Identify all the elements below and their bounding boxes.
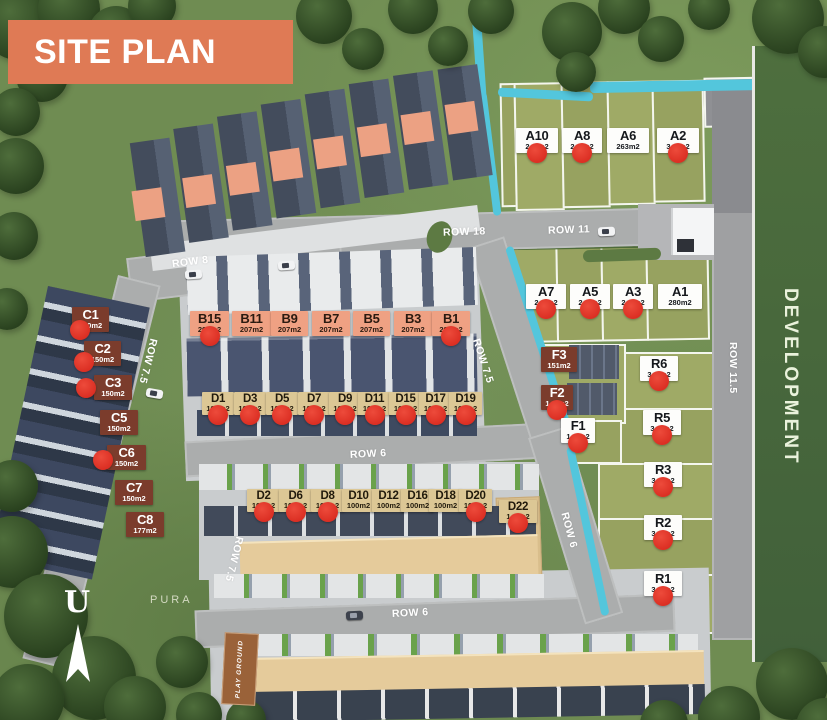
sold-marker [547, 400, 567, 420]
sold-marker [70, 320, 90, 340]
lot-f1: F11__m2 [561, 418, 595, 443]
lot-c6: C6150m2 [107, 445, 146, 470]
lot-d18: D18100m2 [429, 489, 462, 512]
lot-d2: D2100m2 [247, 489, 280, 512]
guard-house-window [677, 239, 694, 252]
lot-r5: R53__m2 [643, 410, 681, 435]
tree [388, 0, 438, 34]
lot-d6: D6100m2 [279, 489, 312, 512]
lot-a1: A1280m2 [658, 284, 702, 309]
sold-marker [304, 405, 324, 425]
tree [638, 16, 684, 62]
house-terrace [313, 135, 347, 169]
north-arrow-icon [64, 624, 92, 682]
car [346, 611, 363, 621]
lot-a6: A6263m2 [607, 128, 649, 153]
road-label-row18: ROW 18 [443, 225, 486, 238]
sold-marker [653, 586, 673, 606]
tree [0, 288, 28, 330]
sold-marker [653, 530, 673, 550]
house-terrace [445, 101, 479, 135]
north-indicator: U [64, 588, 92, 682]
lot-c5: C5150m2 [100, 410, 138, 435]
lot-c7: C7150m2 [115, 480, 153, 505]
lot-r1: R13__m2 [644, 571, 682, 596]
lot-a2: A23__m2 [657, 128, 699, 153]
sold-marker [668, 143, 688, 163]
house-terrace [182, 174, 216, 208]
road-row115-dark-top [712, 85, 755, 213]
lot-a8: A82__m2 [562, 128, 602, 153]
car [278, 260, 296, 270]
lot-b11: B11207m2 [232, 311, 271, 336]
sold-marker [536, 299, 556, 319]
lot-f3: F3151m2 [541, 347, 577, 372]
lot-d8: D8100m2 [311, 489, 344, 512]
lot-b5: B5207m2 [353, 311, 390, 336]
road-label-row6-bottom: ROW 6 [392, 606, 429, 620]
tree [0, 212, 38, 260]
page-title: SITE PLAN [34, 33, 216, 72]
lot-d17: D17100m2 [419, 392, 452, 415]
mid-house-fronts [199, 464, 539, 490]
sold-marker [652, 425, 672, 445]
tree [556, 52, 596, 92]
title-banner: SITE PLAN [8, 20, 293, 84]
car [185, 269, 203, 279]
sold-marker [74, 352, 94, 372]
house-terrace [401, 111, 435, 145]
lot-c8: C8177m2 [126, 512, 164, 537]
playground-label: PLAY GROUND [234, 640, 246, 699]
car [145, 388, 163, 400]
north-label: U [64, 588, 92, 618]
sold-marker [286, 502, 306, 522]
sold-marker [93, 450, 113, 470]
sold-marker [426, 405, 446, 425]
sold-marker [318, 502, 338, 522]
tree [688, 0, 730, 30]
road-label-row115: ROW 11.5 [727, 342, 739, 394]
lot-a10: A102__m2 [516, 128, 558, 153]
sold-marker [441, 326, 461, 346]
sold-marker [76, 378, 96, 398]
sold-marker [200, 326, 220, 346]
lot-d9: D9100m2 [329, 392, 361, 415]
sold-marker [396, 405, 416, 425]
sold-marker [649, 371, 669, 391]
sold-marker [335, 405, 355, 425]
b-house-fronts [186, 247, 478, 315]
lot-r3: R33__m2 [644, 462, 682, 487]
lot-d22: D221__m2 [499, 500, 537, 523]
tree [156, 636, 208, 688]
sold-marker [272, 405, 292, 425]
lot-d1: D1100m2 [202, 392, 234, 415]
lot-c3: C3150m2 [94, 375, 132, 400]
lot-b3: B3207m2 [394, 311, 432, 336]
road-label-row6-mid: ROW 6 [350, 447, 387, 461]
site-plan-map: ROW 18 ROW 11 ROW 8 ROW 7.5 ROW 7.5 ROW … [0, 0, 827, 720]
lot-a5: A52__m2 [570, 284, 610, 309]
house-terrace [131, 187, 165, 221]
low-house-fronts [214, 574, 544, 598]
sold-marker [568, 433, 588, 453]
lot-d3: D3100m2 [234, 392, 266, 415]
tree [296, 0, 352, 44]
pura-label: PURA [150, 594, 193, 606]
car [598, 227, 615, 237]
road-label-row11: ROW 11 [548, 223, 590, 236]
lot-d5: D5100m2 [266, 392, 298, 415]
tree [0, 88, 40, 136]
tree [428, 26, 468, 66]
house-terrace [357, 123, 391, 157]
lot-f2: F21__m2 [541, 385, 573, 410]
lot-d11: D11100m2 [358, 392, 391, 415]
tree [0, 138, 44, 194]
lot-d15: D15100m2 [389, 392, 422, 415]
sold-marker [365, 405, 385, 425]
tree [342, 28, 384, 70]
sold-marker [580, 299, 600, 319]
lot-b15: B15207m2 [190, 311, 229, 336]
lot-r2: R23__m2 [644, 515, 682, 540]
lot-d7: D7100m2 [298, 392, 330, 415]
b-roof-band [187, 333, 478, 396]
lot-c1: C1150m2 [72, 307, 109, 332]
f2-building [567, 383, 617, 415]
development-label: DEVELOPMENT [779, 288, 801, 466]
sold-marker [466, 502, 486, 522]
sold-marker [527, 143, 547, 163]
playground-area: PLAY GROUND [221, 632, 259, 706]
house-terrace [269, 148, 303, 182]
lot-d19: D19100m2 [449, 392, 482, 415]
sold-marker [508, 513, 528, 533]
sold-marker [208, 405, 228, 425]
sold-marker [653, 477, 673, 497]
lot-d10: D10100m2 [342, 489, 375, 512]
house-terrace [226, 162, 260, 196]
sold-marker [623, 299, 643, 319]
sold-marker [240, 405, 260, 425]
sold-marker [456, 405, 476, 425]
lot-a3: A32__m2 [613, 284, 653, 309]
sold-marker [254, 502, 274, 522]
lot-b9: B9207m2 [271, 311, 308, 336]
lot-d20: D20100m2 [459, 489, 492, 512]
lot-c2: C2150m2 [84, 341, 121, 366]
development-area: DEVELOPMENT [752, 46, 827, 662]
lot-b1: B1207m2 [432, 311, 470, 336]
lot-a7: A72__m2 [526, 284, 566, 309]
lot-r6: R63__m2 [640, 356, 678, 381]
sold-marker [572, 143, 592, 163]
lot-b7: B7207m2 [312, 311, 350, 336]
